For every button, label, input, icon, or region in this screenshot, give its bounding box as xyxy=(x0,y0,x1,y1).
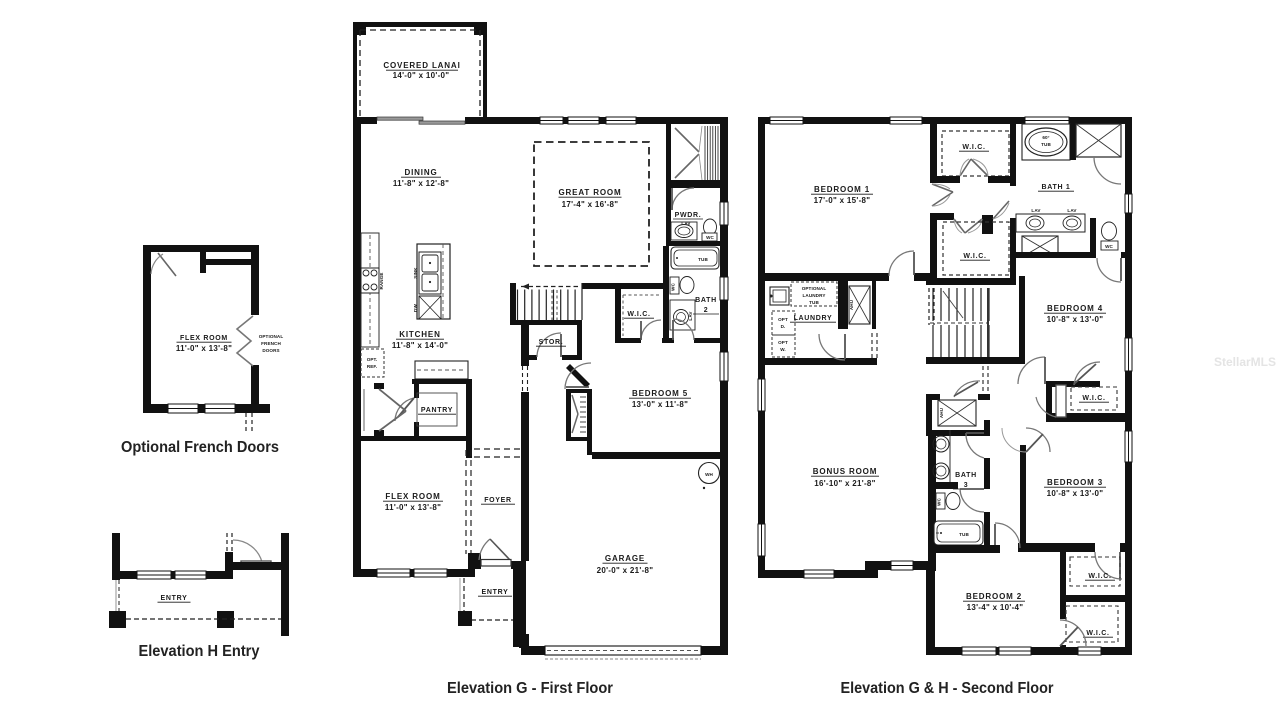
svg-text:BEDROOM 2: BEDROOM 2 xyxy=(966,592,1022,601)
svg-text:FLEX ROOM: FLEX ROOM xyxy=(180,335,228,342)
svg-text:13'-0" x 11'-8": 13'-0" x 11'-8" xyxy=(632,400,688,409)
svg-text:Elevation H Entry: Elevation H Entry xyxy=(139,643,260,660)
svg-text:DINING: DINING xyxy=(404,168,437,177)
svg-text:20'-0" x 21'-8": 20'-0" x 21'-8" xyxy=(597,566,654,575)
svg-text:COVERED LANAI: COVERED LANAI xyxy=(383,61,460,70)
svg-text:ENTRY: ENTRY xyxy=(482,589,509,596)
svg-text:BEDROOM 5: BEDROOM 5 xyxy=(632,389,688,398)
svg-text:W.I.C.: W.I.C. xyxy=(627,311,650,318)
svg-text:BONUS ROOM: BONUS ROOM xyxy=(813,467,878,476)
svg-text:OPT: OPT xyxy=(778,317,788,322)
svg-text:3: 3 xyxy=(964,482,969,489)
svg-text:TUB: TUB xyxy=(809,300,819,305)
svg-text:STOR.: STOR. xyxy=(539,339,564,346)
svg-text:14'-0" x 10'-0": 14'-0" x 10'-0" xyxy=(393,71,450,80)
svg-text:LAUNDRY: LAUNDRY xyxy=(803,293,826,298)
svg-text:TUB: TUB xyxy=(698,257,708,262)
svg-text:LAV: LAV xyxy=(1067,208,1077,213)
svg-text:OPTIONAL: OPTIONAL xyxy=(259,334,284,339)
svg-text:W.I.C.: W.I.C. xyxy=(1086,630,1109,637)
svg-text:GREAT ROOM: GREAT ROOM xyxy=(558,188,621,197)
svg-text:LAUNDRY: LAUNDRY xyxy=(794,315,833,322)
svg-text:LAV: LAV xyxy=(688,311,693,321)
svg-text:PWDR.: PWDR. xyxy=(675,212,702,219)
svg-text:WC: WC xyxy=(1105,244,1113,249)
svg-text:11'-8" x 12'-8": 11'-8" x 12'-8" xyxy=(393,179,449,188)
svg-text:2: 2 xyxy=(704,307,709,314)
svg-text:BATH 1: BATH 1 xyxy=(1042,184,1071,191)
svg-text:Optional French Doors: Optional French Doors xyxy=(121,439,279,456)
svg-text:TUB: TUB xyxy=(959,532,969,537)
svg-text:WC: WC xyxy=(937,497,942,505)
svg-text:Elevation G & H - Second Floor: Elevation G & H - Second Floor xyxy=(841,680,1054,697)
svg-text:D.: D. xyxy=(781,324,786,329)
svg-text:10'-8" x 13'-0": 10'-8" x 13'-0" xyxy=(1047,489,1104,498)
svg-text:LAV: LAV xyxy=(1031,208,1041,213)
svg-text:60°: 60° xyxy=(1042,135,1049,140)
svg-text:13'-4" x 10'-4": 13'-4" x 10'-4" xyxy=(967,603,1024,612)
svg-text:11'-0" x 13'-8": 11'-0" x 13'-8" xyxy=(385,503,441,512)
svg-text:17'-0" x 15'-8": 17'-0" x 15'-8" xyxy=(814,196,871,205)
svg-text:11'-8" x 14'-0": 11'-8" x 14'-0" xyxy=(392,341,448,350)
svg-text:FOYER: FOYER xyxy=(484,497,512,504)
svg-text:W.I.C.: W.I.C. xyxy=(1088,573,1111,580)
svg-text:BATH: BATH xyxy=(695,297,717,304)
svg-text:DW: DW xyxy=(413,304,418,312)
svg-text:BATH: BATH xyxy=(955,472,977,479)
svg-text:OPT: OPT xyxy=(778,340,788,345)
svg-text:WC: WC xyxy=(671,282,676,290)
svg-text:11'-0" x 13'-8": 11'-0" x 13'-8" xyxy=(176,344,232,353)
svg-text:TUB: TUB xyxy=(1041,142,1051,147)
svg-text:WH: WH xyxy=(705,472,713,477)
svg-text:REF.: REF. xyxy=(367,364,377,369)
svg-text:RANGE: RANGE xyxy=(379,272,384,289)
svg-text:BEDROOM 3: BEDROOM 3 xyxy=(1047,478,1103,487)
svg-text:Elevation G - First Floor: Elevation G - First Floor xyxy=(447,680,613,697)
svg-text:W.I.C.: W.I.C. xyxy=(962,144,985,151)
svg-text:W.I.C.: W.I.C. xyxy=(1082,395,1105,402)
svg-text:FLEX ROOM: FLEX ROOM xyxy=(385,492,440,501)
svg-text:PANTRY: PANTRY xyxy=(421,407,453,414)
svg-text:WC: WC xyxy=(706,235,714,240)
svg-text:OPT.: OPT. xyxy=(367,357,378,362)
svg-text:SINK: SINK xyxy=(413,267,418,279)
svg-text:StellarMLS: StellarMLS xyxy=(1214,355,1276,369)
svg-text:AHU: AHU xyxy=(939,407,944,418)
svg-text:W.: W. xyxy=(780,347,786,352)
svg-text:W.I.C.: W.I.C. xyxy=(963,253,986,260)
svg-text:FRENCH: FRENCH xyxy=(261,341,281,346)
svg-text:GARAGE: GARAGE xyxy=(605,554,645,563)
svg-text:17'-4" x 16'-8": 17'-4" x 16'-8" xyxy=(562,200,619,209)
svg-text:ENTRY: ENTRY xyxy=(161,595,188,602)
svg-text:BEDROOM 4: BEDROOM 4 xyxy=(1047,304,1103,313)
svg-text:16'-10" x 21'-8": 16'-10" x 21'-8" xyxy=(814,479,876,488)
svg-text:AHU: AHU xyxy=(849,299,854,310)
svg-text:OPTIONAL: OPTIONAL xyxy=(802,286,827,291)
svg-text:DOORS: DOORS xyxy=(262,348,279,353)
svg-text:10'-8" x 13'-0": 10'-8" x 13'-0" xyxy=(1047,315,1104,324)
svg-text:BEDROOM 1: BEDROOM 1 xyxy=(814,185,870,194)
svg-text:KITCHEN: KITCHEN xyxy=(399,330,441,339)
